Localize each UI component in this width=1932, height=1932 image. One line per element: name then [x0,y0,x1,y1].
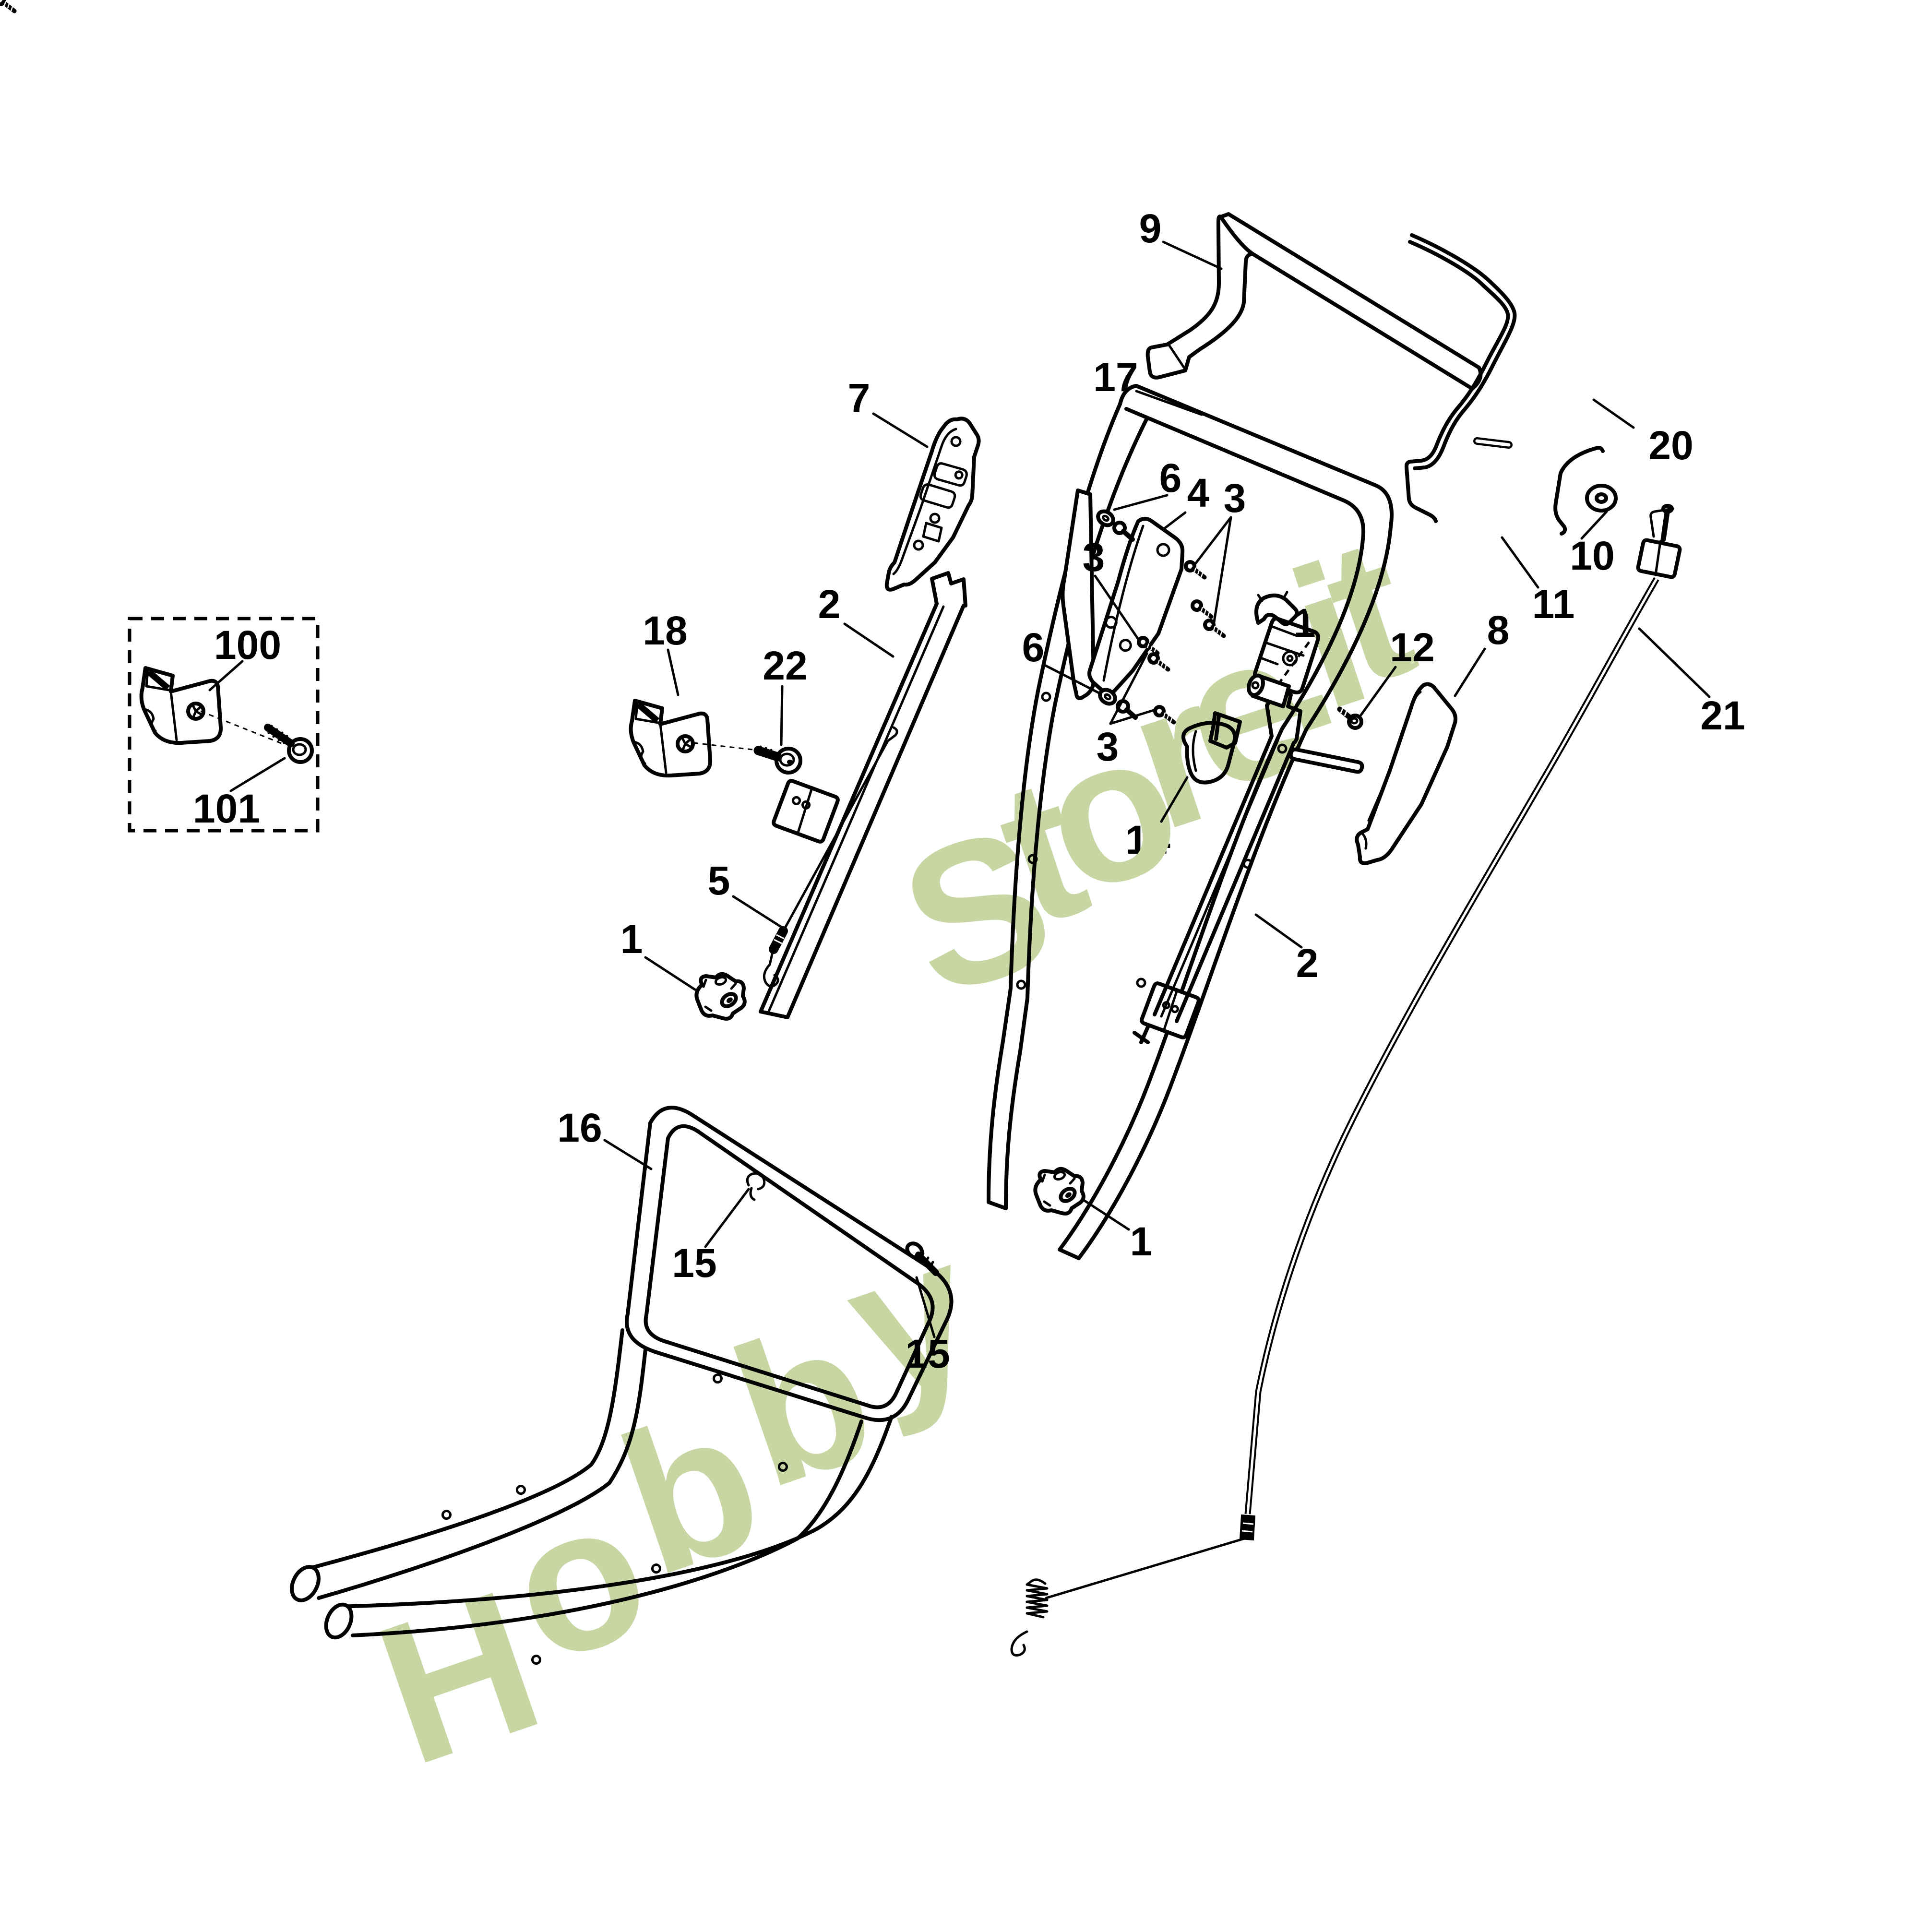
svg-text:21: 21 [1700,693,1745,738]
svg-text:2: 2 [818,582,841,627]
svg-text:15: 15 [672,1240,716,1286]
svg-text:101: 101 [193,786,260,831]
svg-text:8: 8 [1487,608,1510,653]
svg-text:3: 3 [1083,535,1105,580]
svg-text:3: 3 [1097,724,1119,769]
svg-text:4: 4 [1187,470,1210,515]
svg-text:6: 6 [1022,625,1045,670]
svg-text:1: 1 [1130,1219,1153,1264]
svg-text:18: 18 [643,608,687,653]
svg-text:15: 15 [905,1331,950,1376]
svg-text:100: 100 [214,622,281,668]
svg-text:5: 5 [708,858,730,903]
svg-text:20: 20 [1648,423,1693,468]
svg-text:3: 3 [1224,476,1246,521]
svg-text:9: 9 [1139,206,1162,251]
svg-text:2: 2 [1296,941,1319,986]
svg-text:10: 10 [1570,533,1614,578]
svg-text:16: 16 [557,1105,602,1150]
svg-text:17: 17 [1093,355,1138,400]
svg-text:7: 7 [848,375,871,420]
svg-text:12: 12 [1390,625,1434,670]
svg-text:6: 6 [1159,455,1182,501]
svg-text:22: 22 [763,643,807,688]
svg-text:1: 1 [620,917,643,962]
